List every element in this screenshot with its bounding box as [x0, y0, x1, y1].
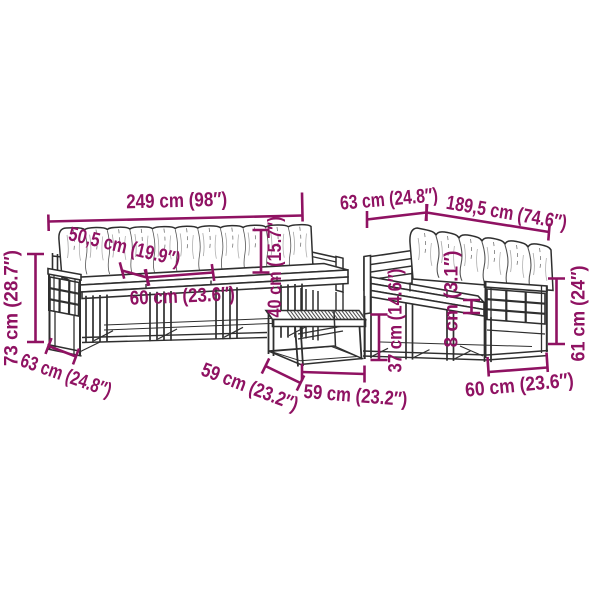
svg-text:60 cm (23.6″): 60 cm (23.6″) — [129, 283, 235, 310]
svg-text:8 cm (3.1″): 8 cm (3.1″) — [442, 251, 463, 348]
svg-text:61 cm (24″): 61 cm (24″) — [569, 266, 590, 362]
svg-text:37 cm (14.6″): 37 cm (14.6″) — [386, 269, 407, 373]
svg-text:40 cm (15.7″): 40 cm (15.7″) — [265, 217, 286, 318]
svg-text:73 cm (28.7″): 73 cm (28.7″) — [2, 250, 23, 366]
svg-text:249 cm (98″): 249 cm (98″) — [126, 189, 228, 214]
